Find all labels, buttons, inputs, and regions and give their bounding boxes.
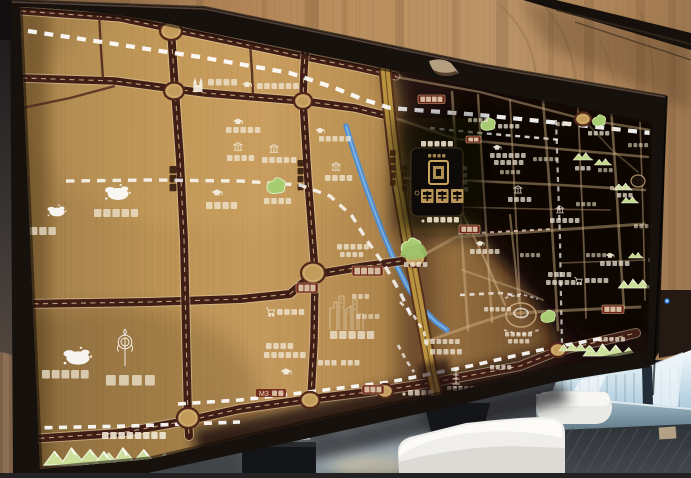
- svg-text:M3: M3: [259, 391, 269, 398]
